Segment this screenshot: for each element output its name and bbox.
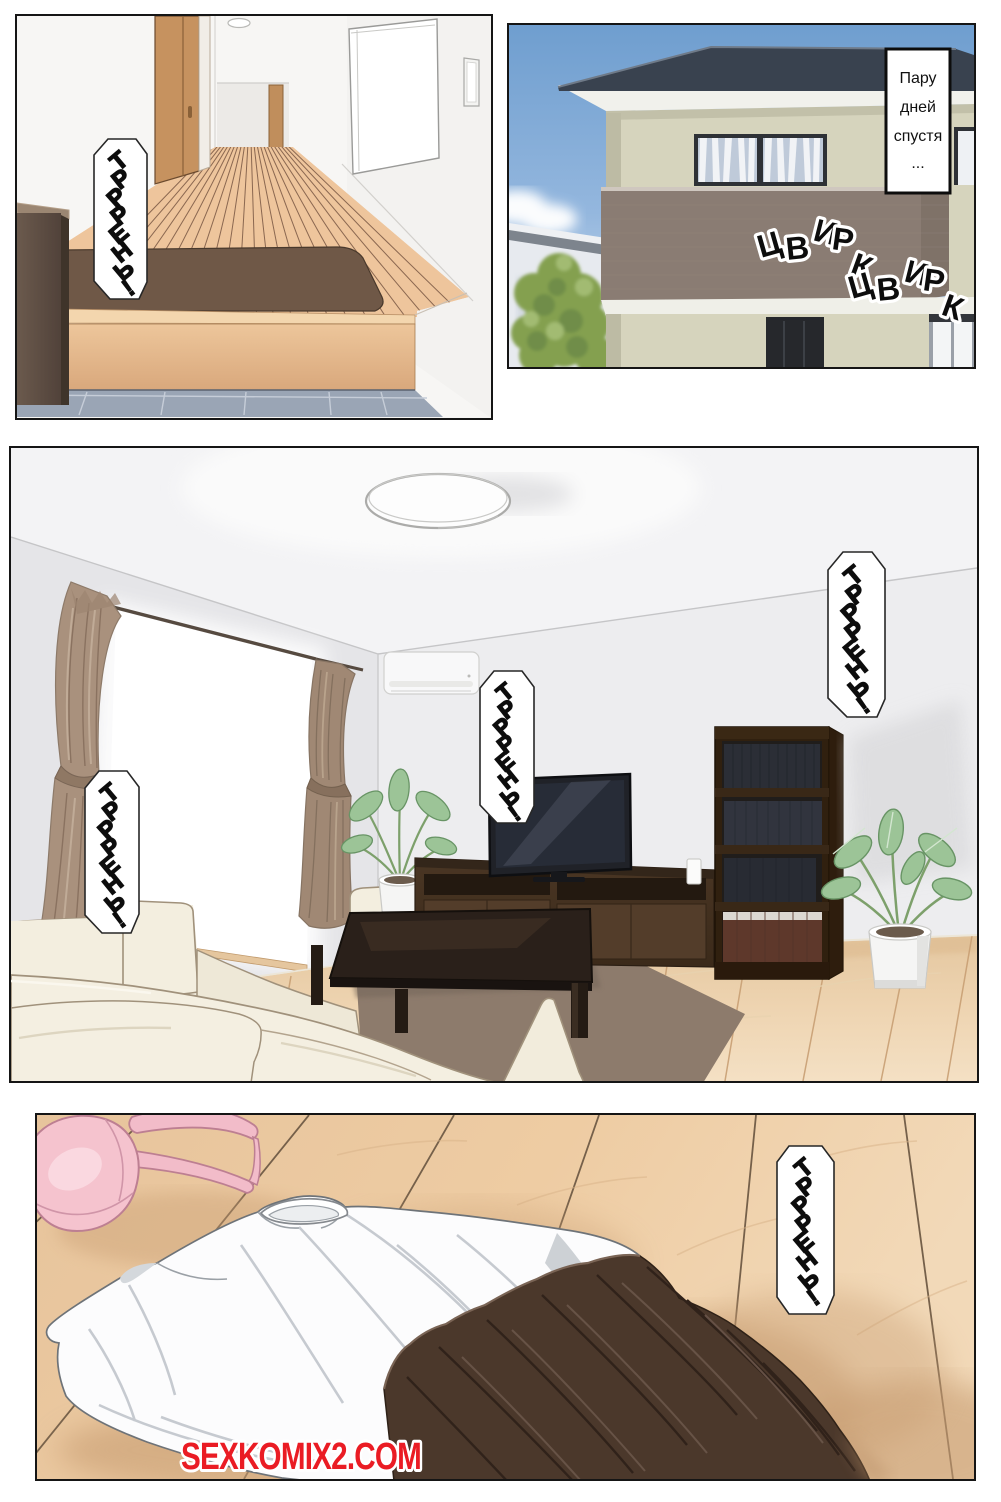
svg-text:SEXKOMIX2.COM: SEXKOMIX2.COM xyxy=(181,1436,421,1478)
svg-text:Пару: Пару xyxy=(899,70,936,87)
svg-text:спустя: спустя xyxy=(894,128,942,145)
svg-text:В: В xyxy=(784,229,811,267)
svg-text:...: ... xyxy=(911,155,924,172)
svg-text:В: В xyxy=(875,270,902,308)
svg-text:дней: дней xyxy=(900,99,936,116)
